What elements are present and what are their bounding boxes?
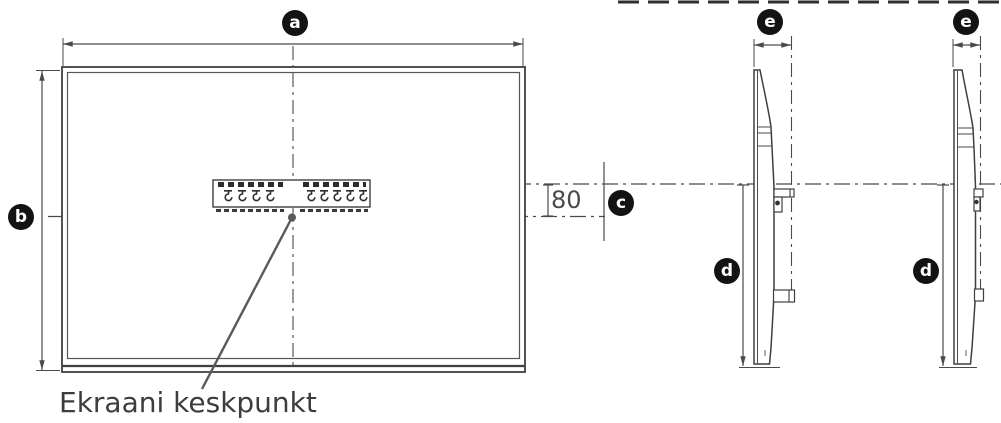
callout-d-badge-right: d	[913, 258, 939, 284]
mount-rail-panel	[213, 180, 370, 211]
callout-d-badge-left: d	[714, 258, 740, 284]
callout-e-badge-right: e	[953, 9, 979, 35]
mount-bracket-lower	[975, 289, 984, 301]
callout-c-badge: c	[608, 190, 634, 216]
callout-e-badge-left: e	[757, 9, 783, 35]
technical-drawing	[0, 0, 1001, 423]
side-view-right	[937, 36, 984, 368]
height-dimension	[36, 71, 60, 371]
callout-b-badge: b	[8, 204, 34, 230]
front-view	[36, 38, 1001, 389]
depth-dimension	[754, 39, 791, 67]
screen-center-caption: Ekraani keskpunkt	[59, 386, 317, 419]
callout-a-badge: a	[282, 10, 308, 36]
tv-dimensions-diagram: a b c d d e e 80 Ekraani keskpunkt	[0, 0, 1001, 423]
depth-dimension	[953, 39, 980, 67]
offset-80-label: 80	[551, 186, 582, 214]
mount-bracket-lower	[774, 290, 795, 302]
side-view-left	[737, 36, 795, 368]
mount-bracket-upper	[974, 189, 983, 211]
